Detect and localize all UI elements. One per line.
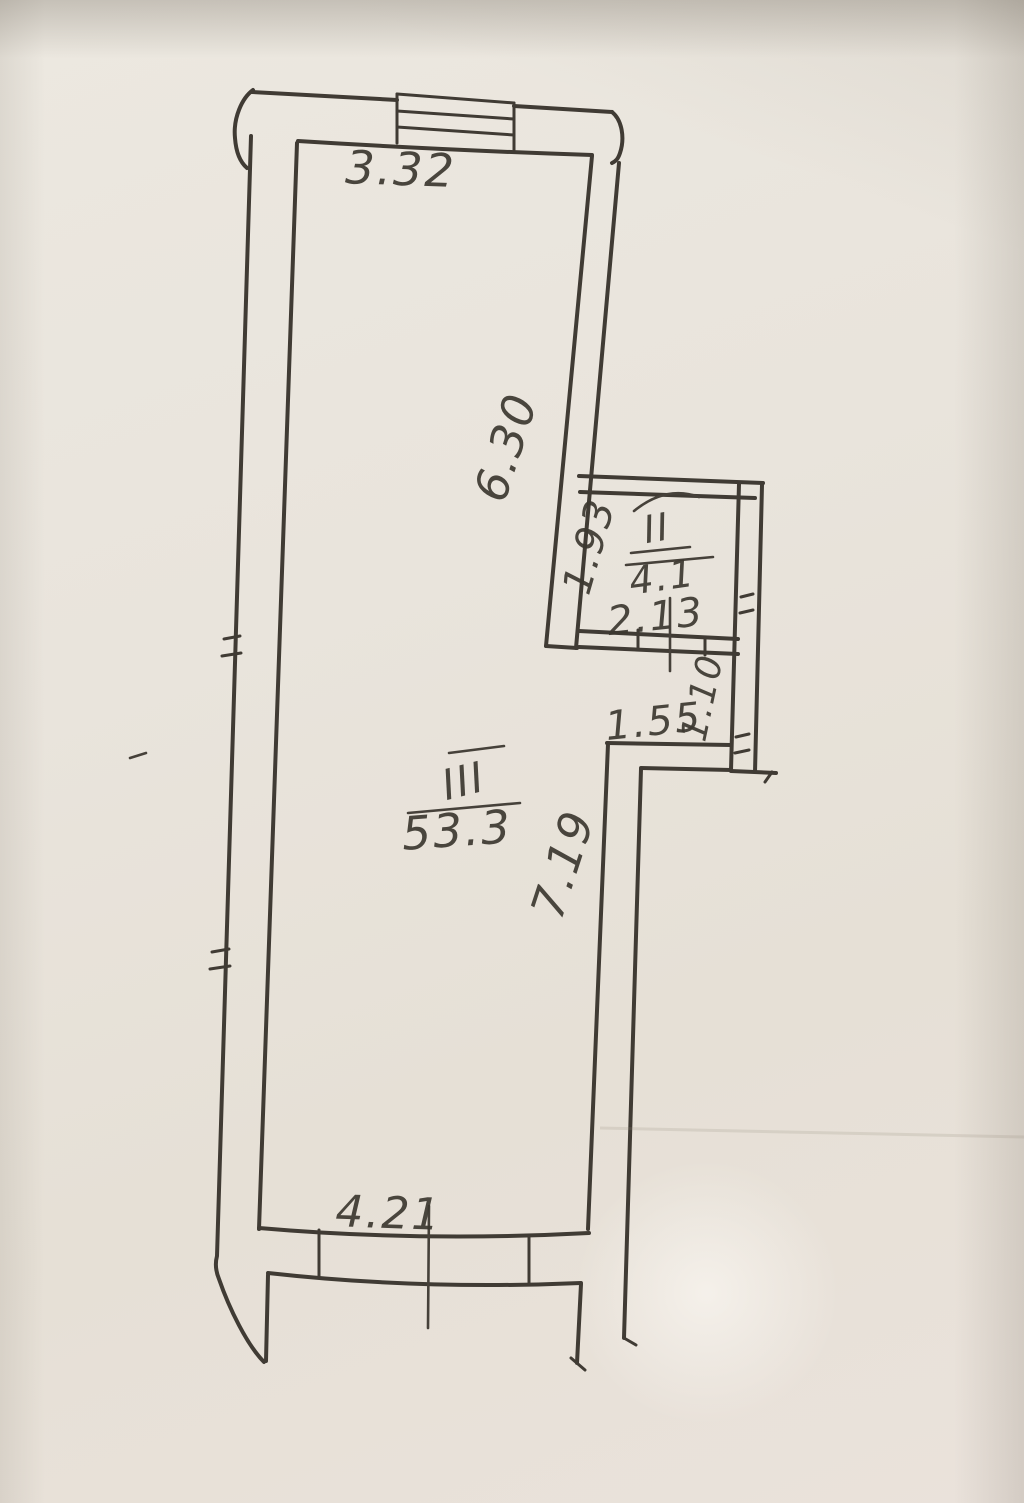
bottom-wall-outer [268, 1273, 581, 1285]
dim-top-window-width: 3.32 [344, 140, 456, 198]
room2-bottom-wall-lower [579, 647, 738, 654]
dim-room2-depth: 1.93 [554, 493, 625, 599]
dim-lower-right-wall-height: 7.19 [520, 803, 605, 925]
top-right-hook [612, 112, 622, 163]
stray-pen-mark [130, 753, 146, 758]
lower-right-wall-outer [624, 769, 641, 1338]
room3-area: 53.3 [400, 799, 514, 861]
porch-right-side [577, 1284, 581, 1363]
step-wall-inner [641, 768, 731, 770]
dim-right-wall-height: 6.30 [463, 386, 548, 508]
right-outer-wall-bottom-cap [731, 771, 776, 773]
left-wall-inner [259, 143, 297, 1229]
top-window-line-2 [397, 111, 514, 119]
top-window-line-3 [397, 127, 514, 135]
floor-plan-canvas: 3.32 6.30 1.93 II 4.1 2.13 1.10 1.55 III… [0, 0, 1024, 1503]
floor-plan-photo: 3.32 6.30 1.93 II 4.1 2.13 1.10 1.55 III… [0, 0, 1024, 1503]
left-wall-outer [216, 136, 264, 1362]
right-outer-wall-tick-4 [735, 750, 749, 753]
top-wall-outer-right [514, 106, 612, 112]
lower-right-wall-end-tick [624, 1338, 636, 1345]
paper-crease [600, 1128, 1024, 1137]
right-outer-wall-tick-3 [736, 734, 749, 737]
right-outer-wall-left-line [731, 484, 739, 770]
room2-number: II [640, 504, 674, 552]
room2-top-wall-outer [579, 476, 763, 483]
right-outer-wall-tick-2 [740, 610, 753, 613]
dimension-lines [130, 547, 1024, 1328]
dim-bottom-window-width: 4.21 [335, 1186, 443, 1241]
right-outer-wall-right-line [755, 485, 762, 772]
top-window-line-1 [397, 94, 514, 103]
right-wall-upper-cap [546, 646, 577, 648]
dim-niche-width: 1.55 [603, 694, 704, 750]
porch-left-side [266, 1275, 268, 1361]
right-outer-wall-tick-1 [741, 594, 753, 597]
left-wall-tick-2 [222, 653, 241, 656]
top-wall-outer-left [252, 92, 397, 100]
labels: 3.32 6.30 1.93 II 4.1 2.13 1.10 1.55 III… [335, 140, 732, 1241]
